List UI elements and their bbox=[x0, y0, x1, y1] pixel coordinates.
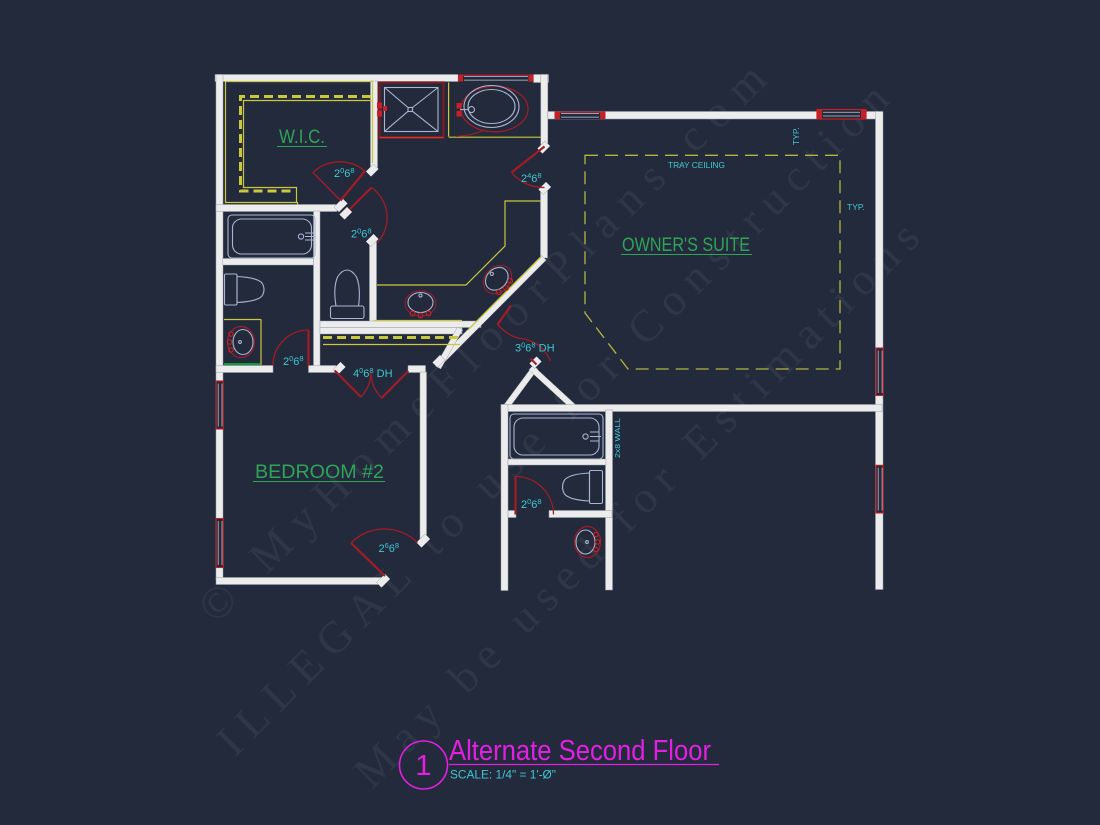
svg-text:W.I.C.: W.I.C. bbox=[279, 127, 325, 148]
svg-text:TYP.: TYP. bbox=[847, 202, 865, 212]
svg-text:SCALE: 1/4" = 1'-Ø": SCALE: 1/4" = 1'-Ø" bbox=[450, 768, 556, 782]
svg-text:1: 1 bbox=[415, 750, 431, 782]
svg-text:4068 DH: 4068 DH bbox=[353, 366, 393, 380]
svg-text:2x8 WALL: 2x8 WALL bbox=[613, 418, 622, 458]
svg-text:Alternate Second Floor: Alternate Second Floor bbox=[449, 735, 711, 767]
svg-text:OWNER'S SUITE: OWNER'S SUITE bbox=[622, 234, 750, 256]
svg-text:BEDROOM #2: BEDROOM #2 bbox=[255, 461, 384, 483]
svg-text:TRAY CEILING: TRAY CEILING bbox=[668, 160, 725, 170]
svg-text:TYP.: TYP. bbox=[791, 127, 801, 145]
svg-text:3068 DH: 3068 DH bbox=[515, 341, 555, 355]
